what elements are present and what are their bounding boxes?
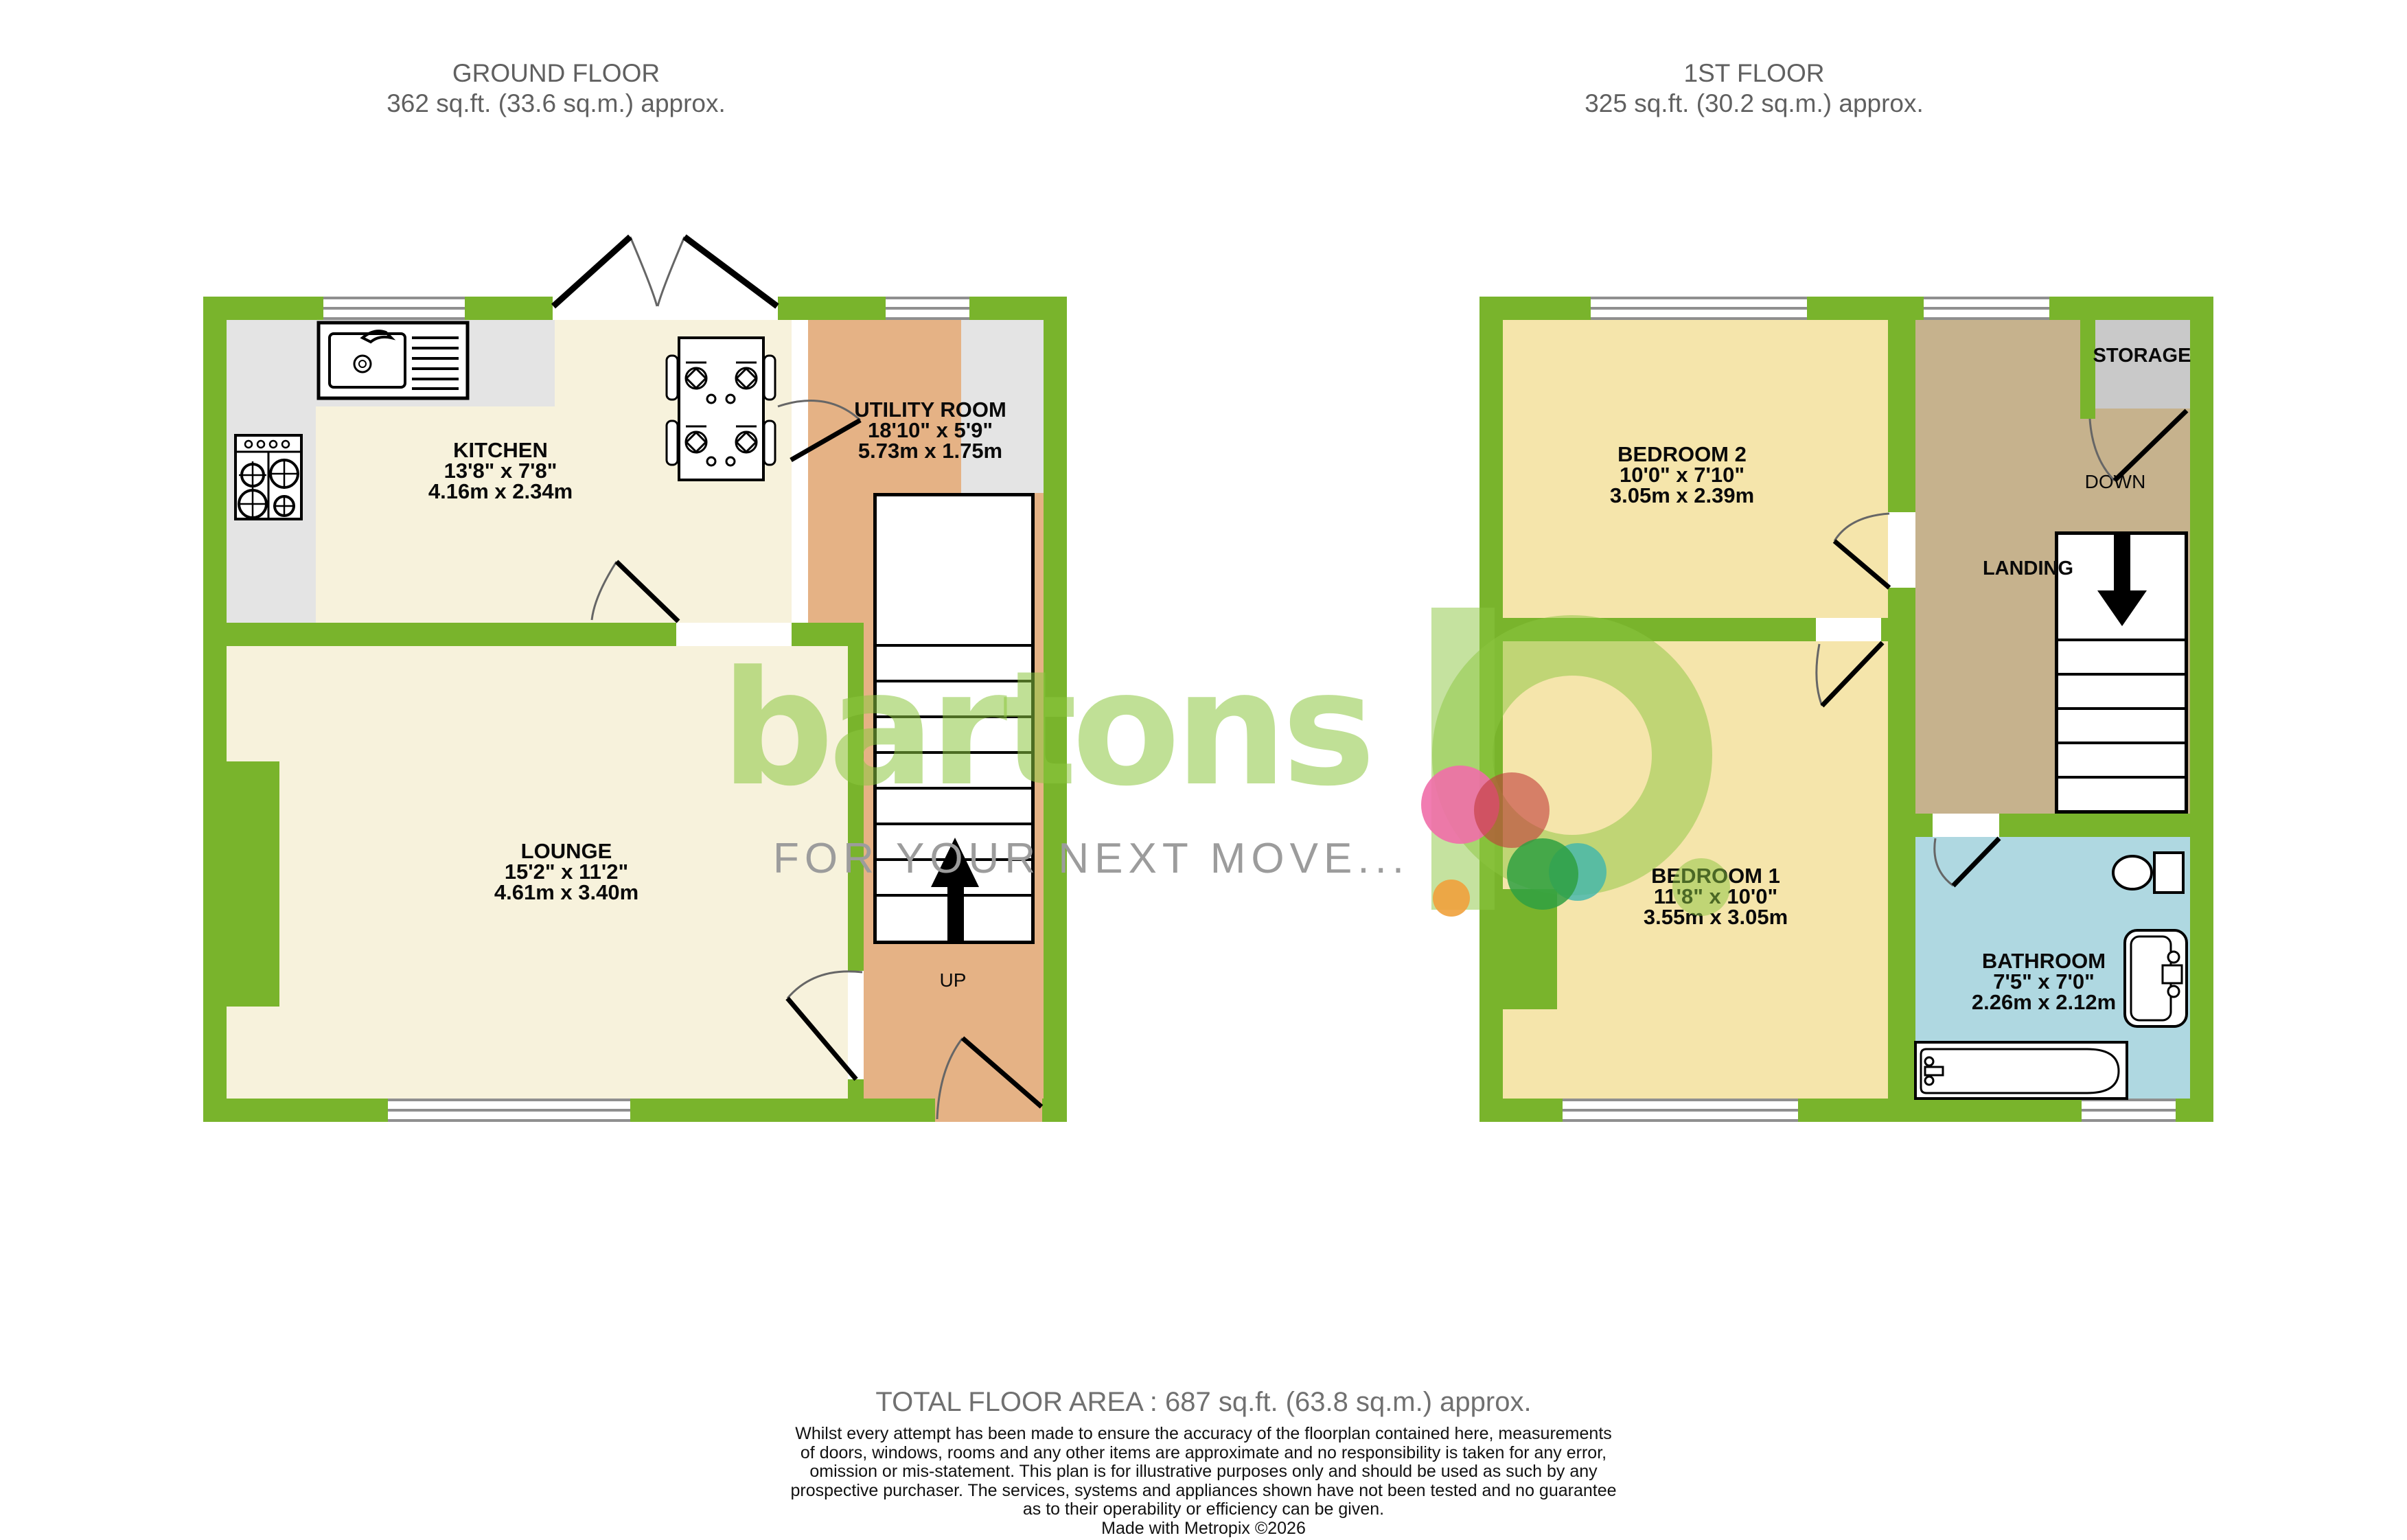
kitchen-lounge-door-icon [592, 562, 678, 621]
orange-dot [1433, 880, 1470, 917]
disclaimer-line: of doors, windows, rooms and any other i… [790, 1444, 1616, 1463]
bartons-logo-text: bartons [721, 651, 1370, 809]
ff-stair-treads [2058, 640, 2185, 777]
patio-doors-icon [553, 237, 777, 306]
bathroom-door-icon [1935, 838, 1999, 886]
green-dot [1507, 838, 1578, 910]
logo-tagline: FOR YOUR NEXT MOVE... [773, 834, 1409, 883]
dining-table-icon [667, 338, 775, 480]
basin-icon [2125, 930, 2187, 1026]
disclaimer-line: omission or mis-statement. This plan is … [790, 1462, 1616, 1482]
toilet-icon [2113, 853, 2183, 893]
metropix-credit: Made with Metropix ©2026 [790, 1519, 1616, 1539]
red-dot [1474, 772, 1550, 848]
footer: TOTAL FLOOR AREA : 687 sq.ft. (63.8 sq.m… [790, 1387, 1616, 1538]
sink-icon [319, 323, 468, 398]
floorplan-canvas: GROUND FLOOR 362 sq.ft. (33.6 sq.m.) app… [0, 0, 2407, 1540]
lounge-door-icon [787, 972, 862, 1079]
storage-door-icon [2090, 411, 2187, 481]
disclaimer-line: prospective purchaser. The services, sys… [790, 1482, 1616, 1501]
kitchen-utility-door-icon [778, 401, 860, 460]
disclaimer-line: as to their operability or efficiency ca… [790, 1500, 1616, 1519]
bathtub-icon [1915, 1042, 2127, 1099]
bedroom2-door-icon [1834, 514, 1889, 588]
disclaimer-line: Whilst every attempt has been made to en… [790, 1425, 1616, 1444]
bedroom1-door-icon [1817, 643, 1882, 706]
total-floor-area: TOTAL FLOOR AREA : 687 sq.ft. (63.8 sq.m… [790, 1387, 1616, 1418]
down-arrow-icon [2097, 534, 2147, 626]
stove-icon [235, 435, 301, 519]
front-door-icon [937, 1038, 1041, 1119]
